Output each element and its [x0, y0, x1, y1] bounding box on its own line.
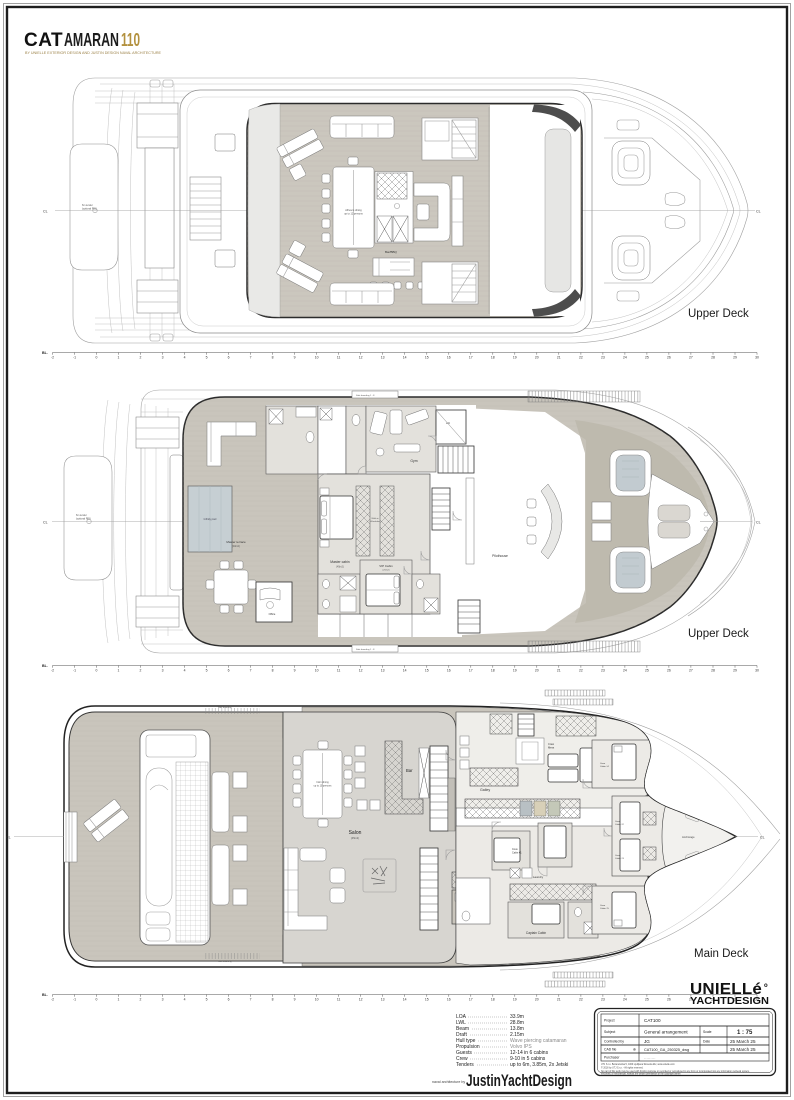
- svg-text:Walk-in: Walk-in: [371, 518, 379, 520]
- svg-text:Laundry: Laundry: [533, 875, 544, 879]
- svg-text:28: 28: [711, 669, 715, 673]
- svg-text:2: 2: [140, 356, 142, 360]
- svg-text:28: 28: [711, 356, 715, 360]
- svg-text:10: 10: [315, 356, 319, 360]
- svg-text:0: 0: [96, 998, 98, 1002]
- svg-text:110: 110: [121, 30, 140, 50]
- svg-text:9: 9: [294, 669, 296, 673]
- svg-text:13: 13: [381, 356, 385, 360]
- svg-text:⊕: ⊕: [633, 1048, 636, 1052]
- svg-text:11: 11: [337, 669, 341, 673]
- svg-text:26: 26: [667, 669, 671, 673]
- svg-text:CL: CL: [6, 836, 11, 840]
- svg-text:Cabin #2: Cabin #2: [615, 824, 625, 826]
- svg-text:21: 21: [557, 356, 561, 360]
- svg-text:Upper Deck: Upper Deck: [688, 308, 749, 320]
- svg-text:Crew: Crew: [548, 742, 554, 746]
- svg-text:1: 1: [118, 998, 120, 1002]
- svg-text:24: 24: [623, 356, 627, 360]
- svg-text:0: 0: [96, 356, 98, 360]
- svg-text:-1: -1: [73, 356, 76, 360]
- svg-text:30: 30: [755, 669, 759, 673]
- svg-text:18: 18: [491, 669, 495, 673]
- svg-text:15: 15: [425, 356, 429, 360]
- svg-text:Cabin #1: Cabin #1: [512, 851, 522, 854]
- svg-text:Upper Deck: Upper Deck: [688, 628, 749, 640]
- svg-text:(45m2): (45m2): [336, 566, 344, 569]
- svg-text:2: 2: [140, 669, 142, 673]
- svg-text:17: 17: [469, 998, 473, 1002]
- svg-text:0: 0: [96, 669, 98, 673]
- svg-text:Gym: Gym: [410, 459, 417, 463]
- svg-text:16: 16: [447, 669, 451, 673]
- svg-text:4: 4: [184, 669, 186, 673]
- svg-text:Scale: Scale: [703, 1030, 712, 1034]
- svg-text:Cabin #5: Cabin #5: [600, 908, 610, 910]
- svg-text:26: 26: [667, 998, 671, 1002]
- svg-text:18: 18: [491, 356, 495, 360]
- svg-text:5: 5: [206, 669, 208, 673]
- svg-text:3-4m long: 3-4m long: [18, 806, 29, 808]
- svg-text:1: 1: [118, 356, 120, 360]
- svg-text:8: 8: [272, 669, 274, 673]
- svg-text:5: 5: [206, 356, 208, 360]
- svg-text:© 2018 by UTJ S.r.o. - All r: © 2018 by UTJ S.r.o. - All rights reserv…: [601, 1067, 644, 1070]
- svg-text:platform. Passerelle: platform. Passerelle: [18, 801, 38, 804]
- svg-text:29: 29: [733, 669, 737, 673]
- svg-text:17: 17: [469, 669, 473, 673]
- svg-text:(optional RIB): (optional RIB): [76, 517, 91, 520]
- svg-text:VIP Cabin: VIP Cabin: [379, 564, 393, 568]
- svg-text:CAT100: CAT100: [644, 1018, 661, 1023]
- svg-text:25: 25: [645, 356, 649, 360]
- svg-text:11: 11: [337, 356, 341, 360]
- svg-text:Captain Cabin: Captain Cabin: [526, 931, 546, 935]
- svg-text:20: 20: [535, 998, 539, 1002]
- svg-text:19: 19: [513, 356, 517, 360]
- svg-text:-2: -2: [51, 998, 54, 1002]
- svg-text:21: 21: [557, 669, 561, 673]
- svg-text:CL: CL: [756, 521, 761, 525]
- svg-text:(45m2): (45m2): [351, 836, 359, 840]
- svg-text:25: 25: [645, 669, 649, 673]
- svg-text:8: 8: [272, 998, 274, 1002]
- svg-text:27: 27: [689, 669, 693, 673]
- svg-text:12: 12: [359, 356, 363, 360]
- svg-text:16: 16: [447, 356, 451, 360]
- svg-text:3: 3: [162, 998, 164, 1002]
- svg-text:20: 20: [535, 669, 539, 673]
- svg-text:up to 10 persons: up to 10 persons: [314, 784, 333, 787]
- svg-text:23: 23: [601, 356, 605, 360]
- svg-text:3: 3: [162, 669, 164, 673]
- svg-text:21: 21: [557, 998, 561, 1002]
- svg-text:22: 22: [579, 998, 583, 1002]
- svg-text:Main Deck: Main Deck: [694, 948, 749, 960]
- svg-text:30: 30: [755, 356, 759, 360]
- svg-text:Master cabin: Master cabin: [330, 560, 350, 564]
- svg-text:12: 12: [359, 998, 363, 1002]
- svg-text:Date: Date: [703, 1040, 710, 1044]
- svg-text:BL.: BL.: [42, 993, 48, 997]
- svg-text:Bar: Bar: [406, 768, 413, 773]
- svg-text:22: 22: [579, 356, 583, 360]
- svg-text:6: 6: [228, 669, 230, 673]
- svg-text:CL: CL: [756, 210, 761, 214]
- svg-text:Crew: Crew: [600, 762, 606, 765]
- svg-text:8: 8: [272, 356, 274, 360]
- svg-text:Cabin #3: Cabin #3: [615, 858, 625, 860]
- svg-text:10: 10: [315, 998, 319, 1002]
- svg-text:BY UNIELLE EXTERIOR DESIGN AND: BY UNIELLE EXTERIOR DESIGN AND JUSTIN DE…: [25, 51, 162, 55]
- svg-text:CL: CL: [43, 521, 48, 525]
- svg-text:27: 27: [689, 356, 693, 360]
- svg-text:Crew: Crew: [615, 854, 621, 857]
- svg-text:AMARAN: AMARAN: [64, 30, 119, 50]
- svg-text:7: 7: [250, 669, 252, 673]
- svg-text:-1: -1: [73, 669, 76, 673]
- svg-text:electronic or mechanical, with: electronic or mechanical, without the wr…: [601, 1072, 681, 1075]
- svg-text:Pilothouse: Pilothouse: [492, 554, 508, 558]
- svg-text:19: 19: [513, 998, 517, 1002]
- svg-text:6: 6: [228, 356, 230, 360]
- svg-text:7: 7: [250, 356, 252, 360]
- svg-text:14: 14: [403, 356, 407, 360]
- svg-text:Controlled by: Controlled by: [604, 1040, 624, 1044]
- svg-text:13: 13: [381, 669, 385, 673]
- svg-text:14: 14: [403, 998, 407, 1002]
- svg-text:17: 17: [469, 356, 473, 360]
- svg-text:BL.: BL.: [42, 664, 48, 668]
- svg-text:Wardrobe: Wardrobe: [370, 520, 380, 523]
- svg-text:4: 4: [184, 356, 186, 360]
- svg-text:naval architecture by: naval architecture by: [432, 1080, 465, 1084]
- svg-text:Bar/BBQ: Bar/BBQ: [385, 250, 398, 254]
- svg-text:6: 6: [228, 998, 230, 1002]
- svg-text:19: 19: [513, 669, 517, 673]
- svg-text:CAT100_GA_250325_dwg: CAT100_GA_250325_dwg: [644, 1048, 689, 1052]
- svg-text:up to 6m, 3.85m, 2x Jetski: up to 6m, 3.85m, 2x Jetski: [510, 1062, 568, 1068]
- svg-text:3: 3: [162, 356, 164, 360]
- svg-text:26: 26: [667, 356, 671, 360]
- svg-text:Galley: Galley: [480, 788, 490, 792]
- svg-text:Side boarding 1 : 8: Side boarding 1 : 8: [356, 648, 375, 651]
- svg-text:Cabin #4: Cabin #4: [600, 766, 610, 768]
- svg-text:25 March 25: 25 March 25: [730, 1047, 756, 1052]
- svg-text:Crew: Crew: [600, 904, 606, 907]
- svg-text:Salon: Salon: [349, 830, 362, 836]
- svg-text:(optional RIB): (optional RIB): [82, 207, 97, 210]
- svg-text:Master terrace: Master terrace: [226, 540, 246, 544]
- svg-text:boat/car lifting: boat/car lifting: [18, 798, 32, 801]
- svg-text:Mess: Mess: [548, 745, 555, 749]
- svg-text:-1: -1: [73, 998, 76, 1002]
- svg-text:18: 18: [491, 998, 495, 1002]
- svg-text:No part of this work may be us: No part of this work may be used with bi…: [601, 1070, 750, 1073]
- svg-text:-2: -2: [51, 356, 54, 360]
- svg-text:up to 12 persons: up to 12 persons: [344, 212, 363, 215]
- svg-text:22: 22: [579, 669, 583, 673]
- svg-text:CL: CL: [43, 210, 48, 214]
- svg-text:14: 14: [403, 669, 407, 673]
- svg-text:15: 15: [425, 998, 429, 1002]
- svg-text:9: 9: [294, 356, 296, 360]
- svg-text:12: 12: [359, 669, 363, 673]
- svg-text:9: 9: [294, 998, 296, 1002]
- svg-text:11: 11: [337, 998, 341, 1002]
- svg-text:BL.: BL.: [42, 351, 48, 355]
- svg-text:20: 20: [535, 356, 539, 360]
- svg-text:1: 1: [118, 669, 120, 673]
- svg-text:o: o: [764, 983, 768, 989]
- svg-text:25 March 25: 25 March 25: [730, 1039, 756, 1044]
- svg-text:Telescopic/rotating: Telescopic/rotating: [18, 795, 37, 798]
- svg-text:23: 23: [601, 998, 605, 1002]
- svg-text:10: 10: [315, 669, 319, 673]
- svg-text:-2: -2: [51, 669, 54, 673]
- svg-text:Tenders: Tenders: [456, 1062, 474, 1068]
- svg-text:General arrangement: General arrangement: [644, 1030, 688, 1035]
- svg-text:CAD file: CAD file: [604, 1048, 617, 1052]
- svg-text:25: 25: [645, 998, 649, 1002]
- svg-text:Crew: Crew: [615, 820, 621, 823]
- svg-text:Side boarding: Side boarding: [218, 706, 232, 709]
- svg-text:Project: Project: [604, 1019, 615, 1023]
- svg-text:(40m2): (40m2): [232, 545, 240, 548]
- svg-text:Side boarding: Side boarding: [218, 960, 232, 963]
- svg-text:JG: JG: [644, 1039, 650, 1044]
- svg-text:24: 24: [623, 669, 627, 673]
- svg-text:UTJ S.r.o. Bozanovicka 5, 100: UTJ S.r.o. Bozanovicka 5, 1000 Ljubljana…: [601, 1063, 675, 1066]
- svg-text:4: 4: [184, 998, 186, 1002]
- svg-text:Infinity pool: Infinity pool: [204, 518, 217, 521]
- svg-text:23: 23: [601, 669, 605, 673]
- svg-text:2: 2: [140, 998, 142, 1002]
- svg-text:Subject: Subject: [604, 1030, 615, 1034]
- svg-text:CL: CL: [760, 836, 765, 840]
- svg-text:1 : 75: 1 : 75: [737, 1030, 753, 1036]
- svg-text:24: 24: [623, 998, 627, 1002]
- svg-text:.........: .........: [644, 1055, 656, 1060]
- svg-text:29: 29: [733, 356, 737, 360]
- svg-text:Office: Office: [269, 612, 276, 616]
- svg-text:Side boarding 1 : 8: Side boarding 1 : 8: [356, 394, 375, 397]
- svg-text:13: 13: [381, 998, 385, 1002]
- svg-text:5: 5: [206, 998, 208, 1002]
- svg-text:JustinYachtDesign: JustinYachtDesign: [466, 1072, 572, 1090]
- svg-text:7: 7: [250, 998, 252, 1002]
- svg-text:15: 15: [425, 669, 429, 673]
- svg-text:CAT: CAT: [24, 30, 63, 51]
- svg-text:Anchorage: Anchorage: [682, 835, 695, 839]
- svg-text:YACHTDESIGN: YACHTDESIGN: [690, 995, 769, 1007]
- svg-text:(25m2): (25m2): [383, 570, 390, 572]
- svg-text:Purchaser: Purchaser: [604, 1056, 620, 1060]
- svg-text:16: 16: [447, 998, 451, 1002]
